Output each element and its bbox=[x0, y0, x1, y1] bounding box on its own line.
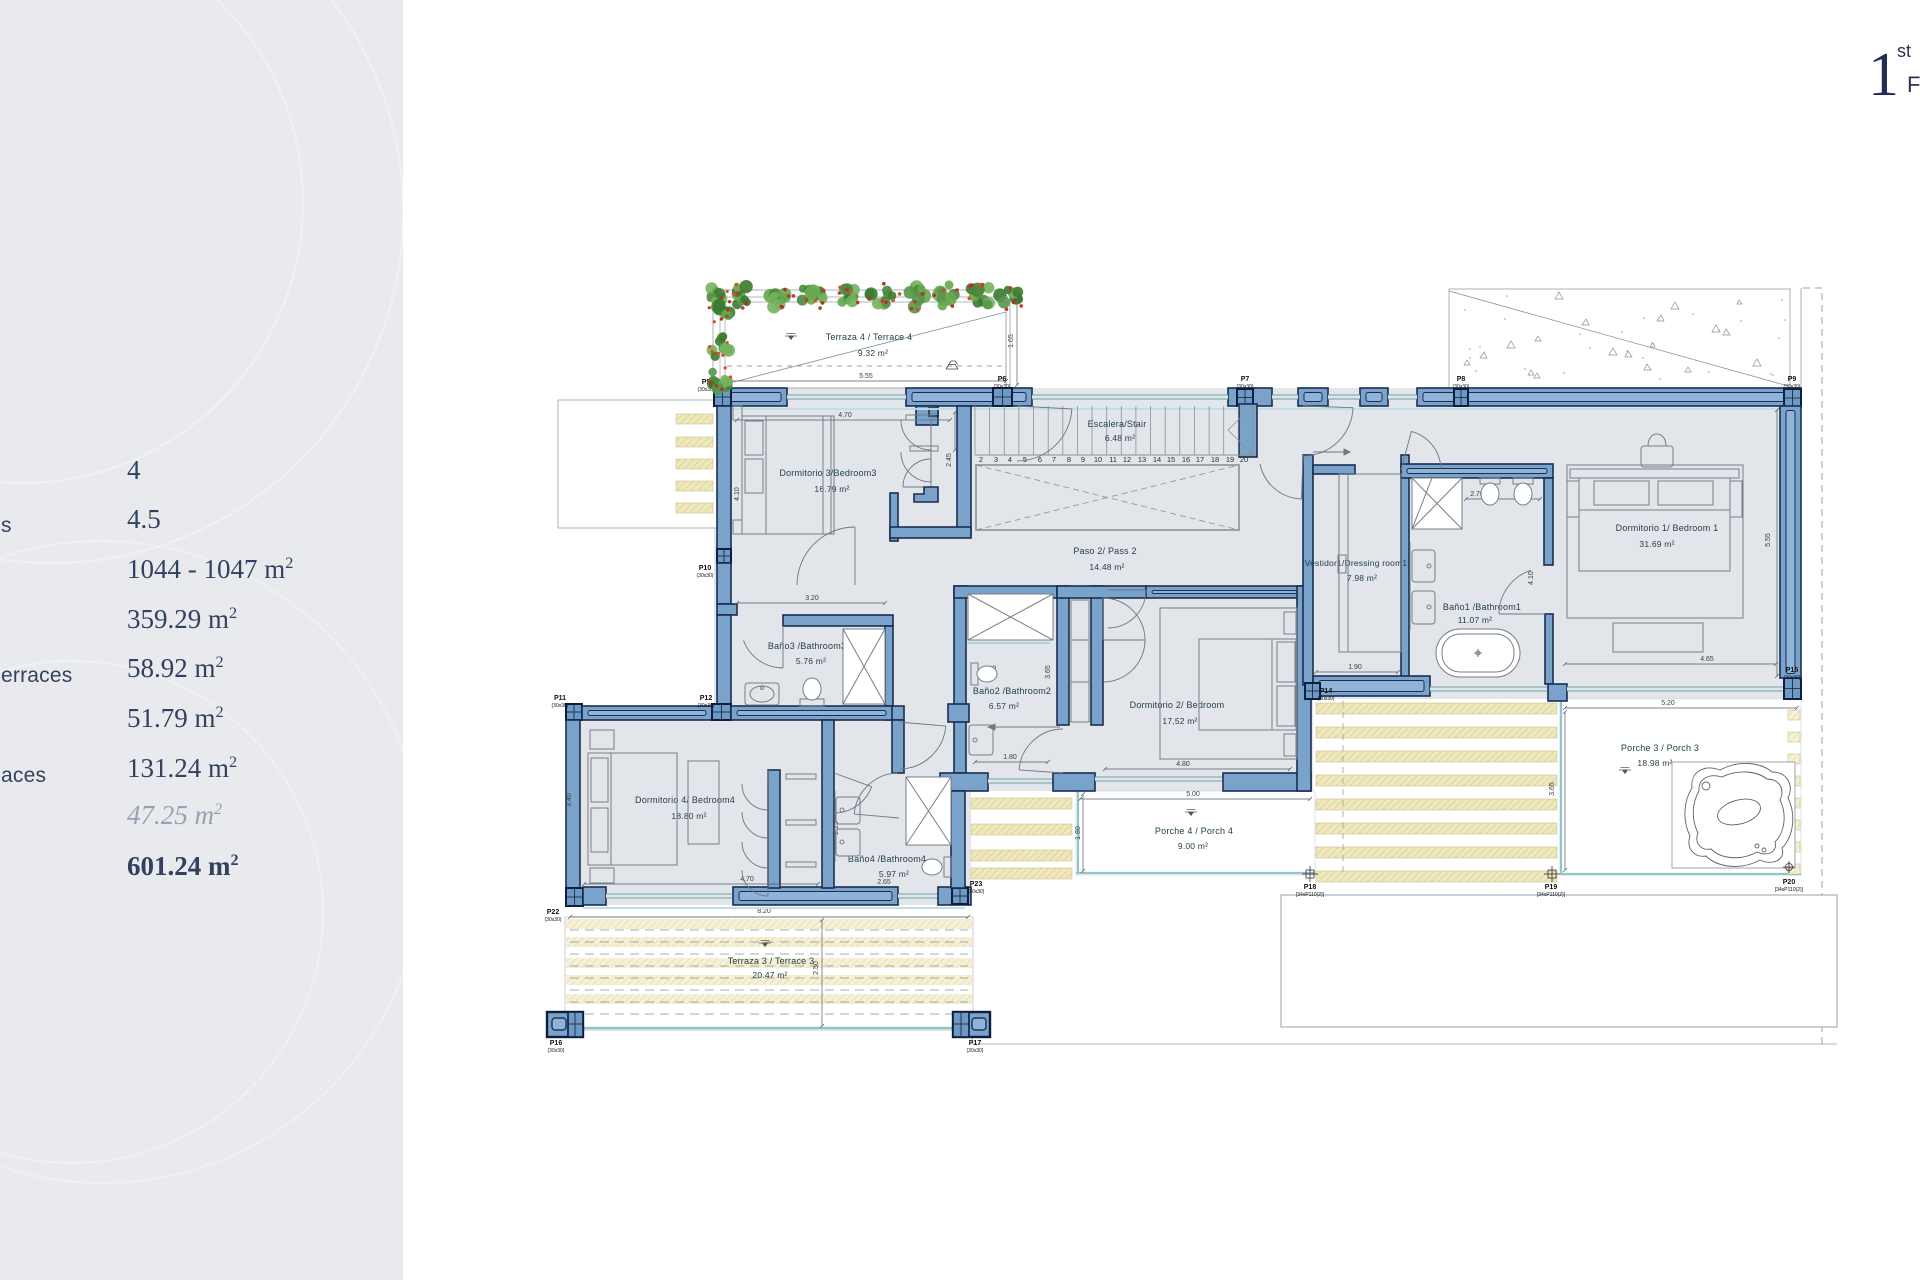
svg-text:P9: P9 bbox=[1788, 376, 1797, 383]
svg-text:11: 11 bbox=[1109, 455, 1117, 464]
svg-text:(30x30): (30x30) bbox=[1784, 675, 1801, 681]
svg-text:5: 5 bbox=[1023, 455, 1027, 464]
svg-text:18.98 m²: 18.98 m² bbox=[1637, 758, 1672, 768]
svg-text:4.70: 4.70 bbox=[838, 412, 852, 419]
svg-text:(30x30): (30x30) bbox=[1784, 384, 1801, 390]
svg-text:31.69 m²: 31.69 m² bbox=[1639, 539, 1674, 549]
svg-text:Escalera/Stair: Escalera/Stair bbox=[1088, 419, 1147, 429]
svg-text:5.00: 5.00 bbox=[1186, 791, 1200, 798]
svg-text:20.47 m²: 20.47 m² bbox=[752, 970, 787, 980]
svg-text:Terraza 3 / Terrace 3: Terraza 3 / Terrace 3 bbox=[728, 956, 815, 966]
svg-text:1.80: 1.80 bbox=[1003, 754, 1017, 761]
svg-text:Dormitorio 1/ Bedroom 1: Dormitorio 1/ Bedroom 1 bbox=[1616, 523, 1719, 533]
svg-text:3.65: 3.65 bbox=[1549, 782, 1556, 796]
svg-text:P19: P19 bbox=[1545, 884, 1558, 891]
svg-text:Dormitorio 4/ Bedroom4: Dormitorio 4/ Bedroom4 bbox=[635, 795, 735, 805]
svg-text:2.65: 2.65 bbox=[877, 879, 891, 886]
svg-text:16: 16 bbox=[1182, 455, 1190, 464]
svg-text:(30x30): (30x30) bbox=[548, 1048, 565, 1054]
svg-text:7: 7 bbox=[1052, 455, 1056, 464]
svg-text:(30x30): (30x30) bbox=[545, 917, 562, 923]
svg-text:Dormitorio 3/Bedroom3: Dormitorio 3/Bedroom3 bbox=[779, 468, 876, 478]
svg-text:P8: P8 bbox=[1457, 376, 1466, 383]
svg-text:P6: P6 bbox=[998, 376, 1007, 383]
svg-text:20: 20 bbox=[1240, 455, 1248, 464]
svg-text:3.20: 3.20 bbox=[805, 595, 819, 602]
svg-text:4.65: 4.65 bbox=[1700, 656, 1714, 663]
svg-text:1.65: 1.65 bbox=[1008, 334, 1015, 348]
svg-text:P10: P10 bbox=[699, 565, 712, 572]
svg-text:(30x30): (30x30) bbox=[1237, 384, 1254, 390]
svg-text:9: 9 bbox=[1081, 455, 1085, 464]
svg-text:(30x30): (30x30) bbox=[1318, 696, 1335, 702]
svg-text:[34xP110(2)]: [34xP110(2)] bbox=[1296, 892, 1325, 898]
svg-text:5.97 m²: 5.97 m² bbox=[879, 869, 909, 879]
svg-text:P12: P12 bbox=[700, 695, 713, 702]
svg-text:14.48 m²: 14.48 m² bbox=[1089, 562, 1124, 572]
svg-text:4.10: 4.10 bbox=[1528, 571, 1535, 585]
svg-text:5.20: 5.20 bbox=[1661, 700, 1675, 707]
svg-text:Paso 2/ Pass 2: Paso 2/ Pass 2 bbox=[1073, 546, 1136, 556]
svg-text:[34xP110(2)]: [34xP110(2)] bbox=[1537, 892, 1566, 898]
svg-text:6.48 m²: 6.48 m² bbox=[1105, 433, 1135, 443]
svg-text:(30x30): (30x30) bbox=[697, 573, 714, 579]
svg-text:Baño3 /Bathroom3: Baño3 /Bathroom3 bbox=[768, 641, 846, 651]
svg-text:(30x30): (30x30) bbox=[994, 384, 1011, 390]
svg-text:2: 2 bbox=[979, 455, 983, 464]
svg-text:7.98 m²: 7.98 m² bbox=[1347, 573, 1377, 583]
svg-text:3: 3 bbox=[994, 455, 998, 464]
svg-text:16.79 m²: 16.79 m² bbox=[814, 484, 849, 494]
svg-text:P14: P14 bbox=[1320, 688, 1333, 695]
svg-text:4.10: 4.10 bbox=[734, 487, 741, 501]
svg-text:(30x30): (30x30) bbox=[968, 889, 985, 895]
svg-text:P16: P16 bbox=[550, 1040, 563, 1047]
svg-text:Vestidor1/Dressing room1: Vestidor1/Dressing room1 bbox=[1305, 558, 1408, 568]
svg-text:[34xP110(2)]: [34xP110(2)] bbox=[1775, 887, 1804, 893]
svg-text:Dormitorio 2/ Bedroom: Dormitorio 2/ Bedroom bbox=[1130, 700, 1225, 710]
svg-text:12: 12 bbox=[1123, 455, 1131, 464]
svg-text:P7: P7 bbox=[1241, 376, 1250, 383]
svg-text:1.80: 1.80 bbox=[1075, 826, 1082, 840]
svg-text:13: 13 bbox=[1138, 455, 1146, 464]
svg-text:17,52 m²: 17,52 m² bbox=[1162, 716, 1197, 726]
svg-text:Terraza 4 / Terrace 4: Terraza 4 / Terrace 4 bbox=[826, 332, 913, 342]
svg-text:(30x30): (30x30) bbox=[552, 703, 569, 709]
svg-text:Porche 4 / Porch 4: Porche 4 / Porch 4 bbox=[1155, 826, 1233, 836]
svg-text:14: 14 bbox=[1153, 455, 1161, 464]
svg-text:3.65: 3.65 bbox=[1045, 665, 1052, 679]
svg-text:P20: P20 bbox=[1783, 879, 1796, 886]
svg-text:(30x30): (30x30) bbox=[967, 1048, 984, 1054]
svg-text:Baño1 /Bathroom1: Baño1 /Bathroom1 bbox=[1443, 602, 1521, 612]
svg-text:Baño2 /Bathroom2: Baño2 /Bathroom2 bbox=[973, 686, 1051, 696]
svg-text:4: 4 bbox=[1008, 455, 1012, 464]
svg-text:1.90: 1.90 bbox=[1348, 664, 1362, 671]
svg-text:8.20: 8.20 bbox=[757, 908, 771, 915]
svg-text:P11: P11 bbox=[554, 695, 566, 702]
svg-text:2.45: 2.45 bbox=[946, 453, 953, 467]
svg-text:3.40: 3.40 bbox=[566, 793, 573, 807]
svg-text:P15: P15 bbox=[1786, 667, 1799, 674]
svg-text:8: 8 bbox=[1067, 455, 1071, 464]
svg-text:(30x30): (30x30) bbox=[1453, 384, 1470, 390]
svg-text:P23: P23 bbox=[970, 881, 983, 888]
svg-text:9.32 m²: 9.32 m² bbox=[858, 348, 888, 358]
svg-text:P17: P17 bbox=[969, 1040, 982, 1047]
svg-text:11.07 m²: 11.07 m² bbox=[1458, 615, 1493, 625]
svg-text:4.70: 4.70 bbox=[740, 876, 754, 883]
svg-text:17: 17 bbox=[1196, 455, 1204, 464]
svg-text:2.50: 2.50 bbox=[813, 961, 820, 975]
svg-text:18: 18 bbox=[1211, 455, 1219, 464]
svg-text:(30x30): (30x30) bbox=[698, 703, 715, 709]
svg-text:15: 15 bbox=[1167, 455, 1175, 464]
svg-text:19: 19 bbox=[1226, 455, 1234, 464]
svg-text:9.00 m²: 9.00 m² bbox=[1178, 841, 1208, 851]
svg-text:P18: P18 bbox=[1304, 884, 1317, 891]
svg-text:6.57 m²: 6.57 m² bbox=[989, 701, 1019, 711]
svg-text:P22: P22 bbox=[547, 909, 560, 916]
svg-text:Porche 3 / Porch 3: Porche 3 / Porch 3 bbox=[1621, 743, 1699, 753]
svg-text:10: 10 bbox=[1094, 455, 1102, 464]
svg-text:5.55: 5.55 bbox=[859, 373, 873, 380]
svg-text:5.76 m²: 5.76 m² bbox=[796, 656, 826, 666]
svg-text:4.80: 4.80 bbox=[1176, 761, 1190, 768]
svg-text:5.55: 5.55 bbox=[1765, 533, 1772, 547]
